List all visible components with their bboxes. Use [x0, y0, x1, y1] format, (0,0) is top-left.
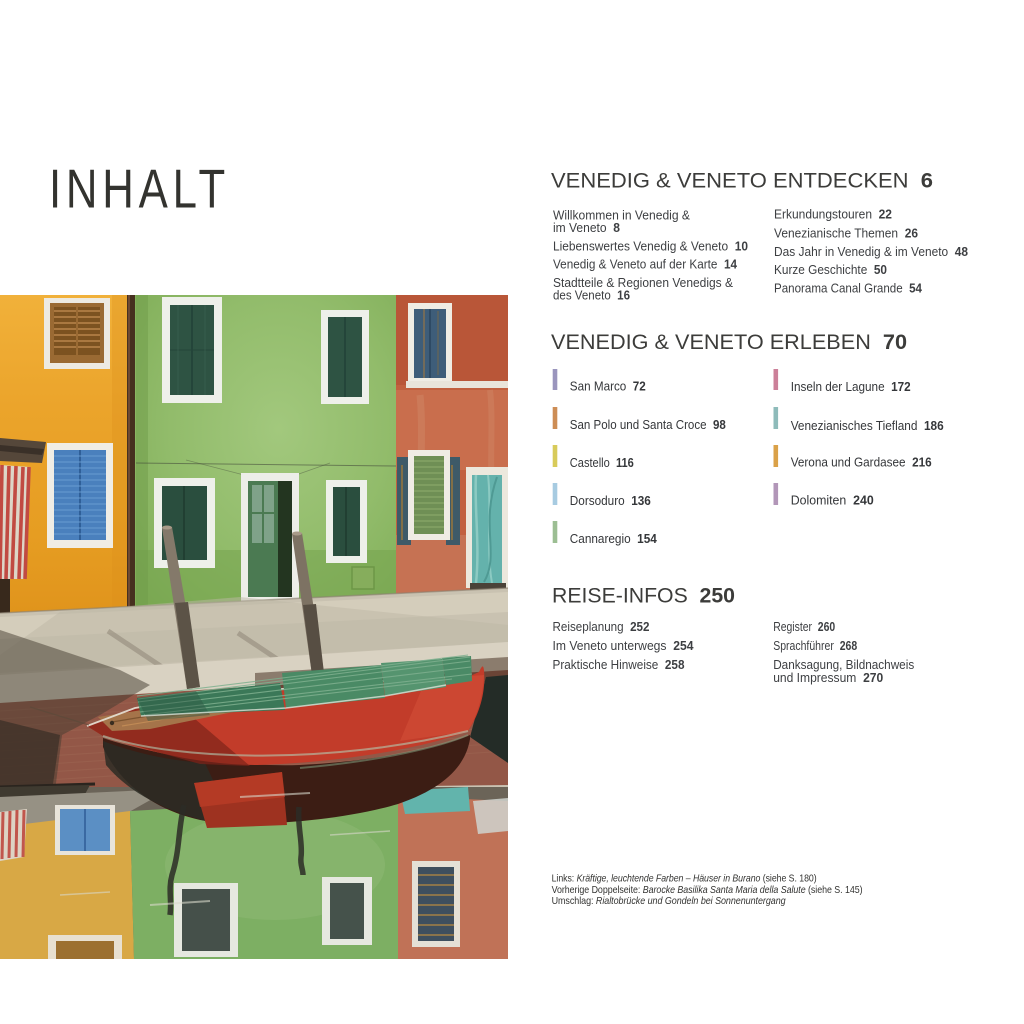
- svg-text:INHALT: INHALT: [49, 158, 230, 220]
- svg-text:VENEDIG & VENETO ENTDECKEN 6: VENEDIG & VENETO ENTDECKEN 6: [551, 169, 933, 193]
- svg-text:Panorama Canal Grande 54: Panorama Canal Grande 54: [774, 282, 922, 296]
- svg-text:Im Veneto unterwegs 254: Im Veneto unterwegs 254: [553, 639, 694, 653]
- svg-text:Praktische Hinweise 258: Praktische Hinweise 258: [553, 658, 685, 672]
- svg-text:Cannaregio 154: Cannaregio 154: [570, 531, 658, 546]
- svg-text:Verona und Gardasee 216: Verona und Gardasee 216: [791, 455, 932, 470]
- svg-text:Inseln der Lagune 172: Inseln der Lagune 172: [791, 379, 911, 394]
- svg-text:Sprachführer 268: Sprachführer 268: [773, 639, 857, 653]
- svg-text:Venedig & Veneto auf der Karte: Venedig & Veneto auf der Karte 14: [553, 258, 737, 272]
- svg-text:San Marco 72: San Marco 72: [570, 379, 646, 394]
- svg-text:VENEDIG & VENETO ERLEBEN 70: VENEDIG & VENETO ERLEBEN 70: [551, 330, 907, 354]
- svg-text:Kurze Geschichte 50: Kurze Geschichte 50: [774, 263, 887, 277]
- svg-text:Register 260: Register 260: [773, 620, 835, 634]
- svg-text:des Veneto 16: des Veneto 16: [553, 289, 630, 303]
- svg-text:Erkundungstouren 22: Erkundungstouren 22: [774, 208, 892, 222]
- svg-text:Das Jahr in Venedig & im Venet: Das Jahr in Venedig & im Veneto 48: [774, 245, 968, 259]
- svg-text:im Veneto 8: im Veneto 8: [553, 221, 620, 235]
- svg-text:Dolomiten 240: Dolomiten 240: [791, 493, 874, 508]
- svg-text:Castello 116: Castello 116: [570, 455, 634, 470]
- svg-text:Reiseplanung 252: Reiseplanung 252: [553, 620, 650, 634]
- svg-text:Venezianische Themen 26: Venezianische Themen 26: [774, 226, 918, 240]
- svg-text:San Polo und Santa Croce 98: San Polo und Santa Croce 98: [570, 417, 726, 432]
- svg-text:Umschlag: Rialtobrücke und Gon: Umschlag: Rialtobrücke und Gondeln bei S…: [552, 896, 786, 907]
- svg-text:Liebenswertes Venedig & Veneto: Liebenswertes Venedig & Veneto 10: [553, 240, 748, 254]
- svg-text:Vorherige Doppelseite: Barocke: Vorherige Doppelseite: Barocke Basilika …: [552, 885, 863, 896]
- svg-text:und Impressum 270: und Impressum 270: [773, 671, 883, 685]
- svg-text:Venezianisches Tiefland 186: Venezianisches Tiefland 186: [791, 418, 944, 433]
- svg-text:Links: Kräftige, leuchtende Fa: Links: Kräftige, leuchtende Farben – Häu…: [552, 873, 817, 884]
- svg-text:Dorsoduro 136: Dorsoduro 136: [570, 493, 651, 508]
- svg-text:REISE-INFOS 250: REISE-INFOS 250: [552, 583, 735, 607]
